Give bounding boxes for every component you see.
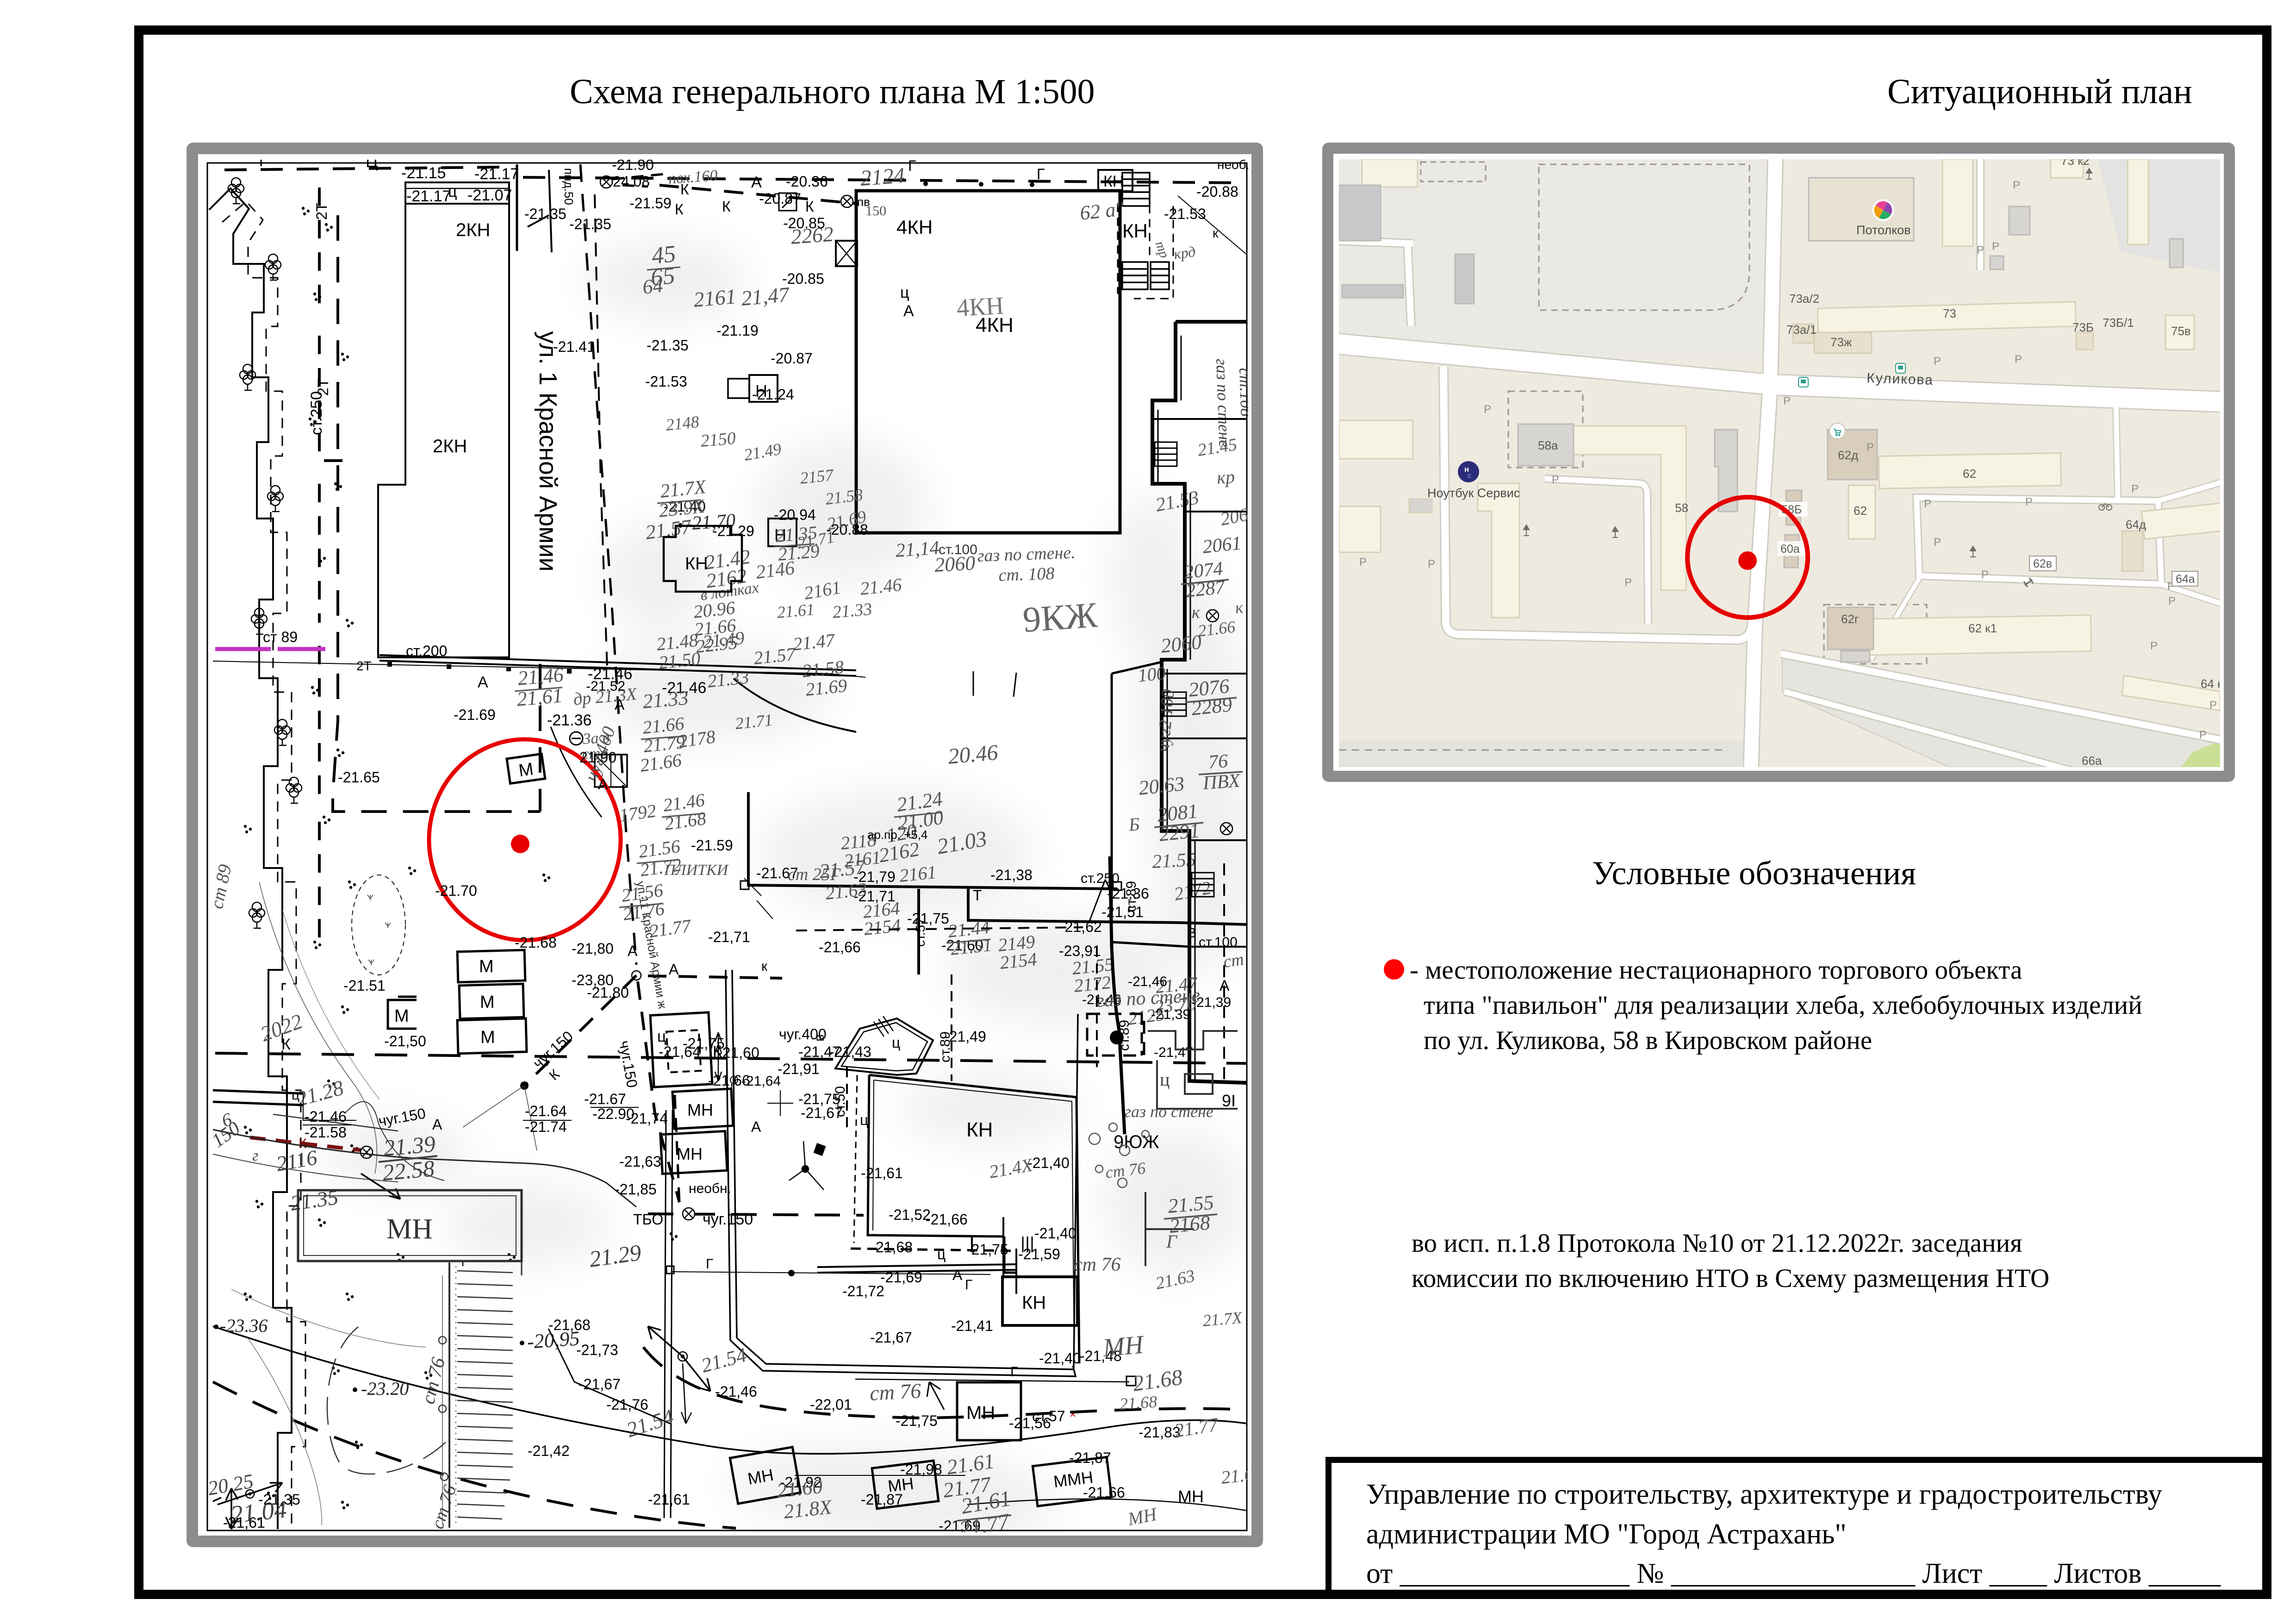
svg-text:2060: 2060 (1219, 502, 1248, 529)
svg-text:Р: Р (1924, 498, 1931, 510)
svg-text:МН: МН (1178, 1487, 1204, 1506)
svg-text:-20.94: -20.94 (774, 506, 816, 523)
svg-text:ц: ц (657, 1028, 666, 1045)
svg-text:21.49: 21.49 (742, 439, 783, 464)
svg-text:21.57: 21.57 (753, 643, 797, 668)
svg-text:-21.41: -21.41 (553, 338, 595, 355)
svg-text:Р: Р (1484, 403, 1491, 416)
svg-text:МН: МН (386, 1213, 433, 1245)
svg-text:в: в (812, 1034, 827, 1042)
svg-text:МН: МН (1101, 1330, 1146, 1362)
svg-text:9КЖ: 9КЖ (1021, 594, 1099, 640)
svg-text:×: × (1070, 1408, 1076, 1421)
svg-text:-21,69: -21,69 (880, 1269, 922, 1286)
svg-text:ст 76: ст 76 (1074, 1254, 1120, 1275)
svg-text:9ЮЖ: 9ЮЖ (1114, 1132, 1159, 1152)
svg-text:ст.200: ст.200 (406, 643, 447, 659)
svg-text:М: М (479, 957, 494, 976)
svg-text:58а: 58а (1538, 438, 1558, 452)
svg-text:М: М (480, 1028, 495, 1047)
svg-text:62 к1: 62 к1 (1968, 621, 1997, 635)
svg-text:-21.53: -21.53 (645, 373, 687, 390)
svg-text:20 25: 20 25 (206, 1469, 255, 1499)
svg-text:-21,75: -21,75 (896, 1412, 938, 1429)
svg-text:4КН: 4КН (896, 216, 933, 238)
svg-text:2161: 2161 (803, 577, 843, 604)
svg-text:ст.50: ст.50 (833, 1086, 848, 1117)
svg-text:ст.100: ст.100 (1199, 935, 1238, 950)
svg-text:А: А (751, 174, 762, 191)
svg-text:21.61: 21.61 (1220, 1463, 1248, 1488)
svg-text:Р: Р (2199, 729, 2207, 741)
svg-text:М: М (394, 1006, 409, 1026)
svg-text:21.61: 21.61 (776, 600, 815, 622)
svg-text:Р: Р (1977, 244, 1984, 256)
svg-text:21.71: 21.71 (734, 711, 774, 733)
svg-text:4КН: 4КН (976, 314, 1014, 337)
svg-text:А: А (628, 943, 638, 959)
svg-text:-23.20: -23.20 (361, 1378, 409, 1399)
svg-text:62: 62 (1963, 467, 1976, 481)
svg-text:Р: Р (1428, 558, 1435, 570)
svg-text:чуг.150: чуг.150 (703, 1211, 753, 1228)
svg-text:Р: Р (2025, 496, 2033, 508)
svg-text:чуг.150: чуг.150 (530, 1028, 576, 1072)
svg-text:Р: Р (1992, 240, 1999, 253)
svg-text:ц: ц (1160, 1069, 1170, 1090)
svg-text:Г: Г (1010, 1364, 1018, 1380)
svg-text:К: К (675, 201, 684, 218)
svg-text:А: А (903, 302, 914, 320)
svg-text:А: А (751, 1118, 761, 1135)
svg-text:73ж: 73ж (1830, 335, 1852, 349)
svg-text:-20.87: -20.87 (759, 190, 801, 207)
svg-text:-23.36: -23.36 (220, 1315, 268, 1336)
svg-text:73Б/1: 73Б/1 (2103, 316, 2134, 330)
svg-text:9І: 9І (1222, 1091, 1236, 1110)
svg-text:Ц: Ц (366, 160, 378, 171)
svg-text:А: А (478, 674, 488, 691)
svg-text:Р: Р (1981, 568, 1989, 581)
svg-text:2060: 2060 (1160, 631, 1203, 657)
svg-text:Р: Р (1867, 441, 1874, 454)
svg-text:-21,80: -21,80 (572, 940, 614, 957)
svg-text:2150: 2150 (700, 429, 736, 451)
svg-text:2289: 2289 (1190, 693, 1233, 720)
svg-text:20.63: 20.63 (1138, 772, 1186, 800)
svg-text:2161: 2161 (898, 862, 937, 886)
svg-text:-21.65: -21.65 (338, 769, 380, 786)
svg-text:ст 76: ст 76 (427, 1482, 460, 1531)
svg-text:ст.89: ст.89 (1124, 881, 1139, 912)
svg-text:-21,61: -21,61 (223, 1514, 265, 1531)
svg-text:21,47: 21,47 (740, 282, 791, 310)
svg-text:КН: КН (1103, 173, 1124, 190)
svg-text:20.46: 20.46 (947, 740, 999, 769)
svg-text:-21,75: -21,75 (966, 1241, 1008, 1258)
svg-text:КН: КН (1022, 1293, 1046, 1313)
svg-text:ст. 108: ст. 108 (998, 564, 1055, 585)
svg-text:газ по стене: газ по стене (1213, 358, 1234, 448)
svg-text:ПЛИТКИ: ПЛИТКИ (664, 862, 729, 879)
svg-text:64д: 64д (2126, 518, 2146, 531)
svg-text:Р: Р (1934, 355, 1941, 368)
svg-text:ст 89: ст 89 (206, 862, 236, 911)
svg-text:-21,40: -21,40 (1027, 1155, 1070, 1171)
svg-text:к: к (1213, 226, 1219, 240)
svg-text:2Т: 2Т (313, 203, 330, 220)
svg-text:чуг.150: чуг.150 (616, 1039, 641, 1089)
svg-text:-20.85: -20.85 (782, 270, 824, 287)
svg-text:-21,72: -21,72 (842, 1283, 884, 1299)
svg-text:-21.19: -21.19 (716, 322, 759, 339)
svg-text:-21.69: -21.69 (454, 706, 496, 723)
svg-text:К: К (547, 1067, 563, 1084)
svg-text:газ по стене: газ по стене (1125, 1102, 1213, 1121)
svg-text:62в: 62в (2033, 557, 2052, 570)
svg-text:21.33: 21.33 (832, 600, 873, 622)
svg-text:73: 73 (1943, 306, 1956, 320)
svg-text:В: В (1187, 925, 1196, 941)
svg-text:-21,38: -21,38 (990, 867, 1033, 883)
svg-text:-21.59: -21.59 (691, 837, 733, 854)
svg-text:21.77: 21.77 (1173, 1414, 1220, 1442)
svg-text:21.46: 21.46 (859, 574, 902, 599)
svg-text:Р: Р (1552, 474, 1559, 486)
svg-text:1792: 1792 (618, 800, 657, 826)
svg-text:21.45: 21.45 (1196, 435, 1238, 460)
svg-text:2061: 2061 (1201, 532, 1242, 558)
svg-text:-21,43: -21,43 (829, 1043, 871, 1060)
svg-text:Р: Р (2015, 353, 2022, 366)
svg-text:к: к (1234, 598, 1244, 617)
svg-text:ст.108: ст.108 (1236, 368, 1248, 417)
svg-text:А: А (669, 961, 679, 978)
svg-text:ст.250: ст.250 (308, 391, 325, 435)
svg-text:необн.: необн. (689, 1181, 731, 1196)
svg-text:ц: ц (892, 1034, 900, 1051)
svg-text:-21,66: -21,66 (926, 1211, 968, 1228)
svg-text:А: А (615, 696, 625, 713)
svg-text:73Б: 73Б (2072, 320, 2094, 334)
svg-text:-21,73: -21,73 (576, 1342, 618, 1358)
svg-text:-21,66: -21,66 (819, 939, 861, 956)
svg-text:-21.58: -21.58 (305, 1124, 347, 1141)
svg-text:А: А (598, 776, 608, 793)
svg-text:-21.36: -21.36 (547, 712, 591, 729)
svg-text:ц: ц (860, 1112, 868, 1128)
svg-text:2161: 2161 (843, 847, 882, 871)
svg-text:-21,42: -21,42 (528, 1443, 570, 1459)
svg-text:-21,74: -21,74 (626, 1110, 668, 1127)
svg-text:г: г (252, 1147, 258, 1164)
svg-text:150: 150 (865, 203, 886, 219)
svg-text:21.7Х: 21.7Х (1202, 1308, 1244, 1330)
svg-text:21.50: 21.50 (658, 648, 701, 673)
svg-text:МН: МН (966, 1403, 995, 1423)
svg-text:21.69: 21.69 (804, 675, 848, 700)
svg-text:62 а": 62 а" (1079, 197, 1126, 225)
svg-text:-21.74: -21.74 (525, 1118, 567, 1135)
svg-text:2157: 2157 (799, 465, 835, 487)
svg-text:ар.пр. +5,4: ар.пр. +5,4 (867, 828, 927, 842)
svg-text:Г: Г (1037, 166, 1045, 182)
svg-text:МН: МН (677, 1144, 703, 1163)
svg-text:-21,41: -21,41 (951, 1318, 993, 1334)
svg-text:21.54: 21.54 (699, 1343, 749, 1377)
svg-text:МН: МН (687, 1100, 713, 1119)
svg-text:ст.250: ст.250 (1081, 871, 1120, 886)
svg-text:Б: Б (1127, 813, 1140, 835)
svg-text:-21.51: -21.51 (343, 977, 386, 994)
svg-text:КН: КН (1122, 220, 1148, 242)
svg-text:-21.35: -21.35 (647, 337, 689, 354)
svg-text:21,68: 21,68 (876, 1239, 913, 1255)
svg-text:Г: Г (908, 160, 916, 174)
svg-text:крд: крд (1173, 243, 1196, 262)
svg-text:-21.67: -21.67 (584, 1091, 626, 1107)
svg-text:62д: 62д (1838, 448, 1858, 462)
svg-text:2146: 2146 (755, 557, 796, 583)
svg-text:Р: Р (2150, 640, 2158, 652)
svg-text:2124: 2124 (859, 163, 905, 191)
svg-text:Г: Г (965, 1277, 972, 1293)
svg-text:-21.64: -21.64 (525, 1103, 567, 1119)
svg-text:Г: Г (259, 160, 267, 169)
svg-text:73 к2: 73 к2 (2061, 159, 2090, 168)
svg-text:ул. 1 Красной Армии: ул. 1 Красной Армии (534, 331, 562, 571)
svg-text:2161: 2161 (692, 284, 737, 312)
svg-text:-21,40: -21,40 (1034, 1225, 1076, 1242)
svg-text:-21,61: -21,61 (648, 1491, 690, 1508)
svg-text:22.95: 22.95 (695, 632, 738, 657)
svg-text:64 к: 64 к (2201, 677, 2220, 691)
svg-text:с: с (1468, 472, 1471, 480)
svg-text:-21,39: -21,39 (1151, 1007, 1190, 1022)
svg-text:-21,91: -21,91 (778, 1061, 820, 1077)
svg-text:-21,67: -21,67 (870, 1329, 912, 1346)
svg-text:Т: Т (973, 887, 982, 904)
svg-text:-21.68: -21.68 (515, 934, 557, 951)
svg-text:-21,50: -21,50 (384, 1033, 426, 1049)
svg-text:-21,56: -21,56 (1009, 1415, 1051, 1431)
svg-text:21.68: 21.68 (1119, 1392, 1158, 1413)
svg-text:-21.90: -21.90 (612, 160, 654, 173)
svg-text:пвх.160: пвх.160 (668, 167, 718, 187)
svg-text:-21,98: -21,98 (900, 1461, 942, 1478)
svg-text:-21,47: -21,47 (1154, 1045, 1193, 1060)
svg-text:-21.07: -21.07 (467, 187, 512, 204)
svg-text:ст.57: ст.57 (913, 918, 927, 947)
svg-text:Р: Р (1783, 395, 1791, 407)
svg-text:к: к (1192, 603, 1201, 622)
svg-text:66а: 66а (2082, 754, 2102, 767)
svg-text:М: М (480, 993, 495, 1012)
svg-text:21.4Х: 21.4Х (988, 1154, 1035, 1182)
svg-text:62: 62 (1854, 504, 1867, 518)
svg-text:ц: ц (937, 1246, 946, 1262)
svg-text:ст.100: ст.100 (898, 160, 934, 162)
svg-text:Р: Р (1359, 556, 1367, 568)
svg-text:64а: 64а (2176, 573, 2195, 586)
svg-text:-21.52: -21.52 (586, 679, 625, 694)
svg-text:-21.70: -21.70 (435, 882, 477, 899)
svg-text:21.33: 21.33 (706, 667, 750, 692)
svg-text:2154: 2154 (999, 949, 1038, 973)
svg-text:Потолков: Потолков (1856, 223, 1911, 237)
svg-text:21.47: 21.47 (792, 630, 836, 655)
svg-text:-20.36: -20.36 (786, 173, 828, 190)
svg-text:кр: кр (1216, 466, 1235, 488)
svg-text:МН: МН (1126, 1503, 1159, 1530)
svg-text:76: 76 (1207, 750, 1228, 773)
svg-text:-21.59: -21.59 (629, 195, 672, 212)
svg-text:21,14: 21,14 (895, 537, 940, 561)
svg-text:62г: 62г (1841, 612, 1859, 626)
svg-text:-21,61: -21,61 (861, 1165, 903, 1181)
svg-text:КН: КН (966, 1118, 993, 1141)
svg-text:-21,66: -21,66 (708, 1072, 750, 1089)
svg-text:75в: 75в (2171, 324, 2191, 338)
svg-text:-20.88: -20.88 (1196, 183, 1238, 200)
svg-text:Р: Р (1624, 576, 1632, 589)
svg-text:21.68: 21.68 (1131, 1365, 1184, 1396)
svg-text:-21,40: -21,40 (1039, 1350, 1081, 1367)
svg-text:-21.80: -21.80 (587, 984, 629, 1001)
svg-text:24.08: 24.08 (613, 173, 650, 190)
svg-text:2148: 2148 (665, 412, 700, 434)
svg-text:ст 89: ст 89 (263, 629, 298, 645)
svg-text:-21.24: -21.24 (752, 386, 794, 403)
svg-text:-21,35: -21,35 (258, 1491, 300, 1508)
svg-text:необ.: необ. (1217, 160, 1248, 172)
svg-text:КН: КН (685, 554, 708, 574)
svg-text:Р: Р (2131, 483, 2139, 495)
svg-text:73а/1: 73а/1 (1786, 323, 1817, 337)
svg-text:Р: Р (2168, 595, 2176, 607)
svg-text:К: К (805, 198, 814, 215)
svg-text:-21,52: -21,52 (889, 1206, 931, 1223)
svg-text:газ по стене.: газ по стене. (977, 543, 1076, 566)
svg-text:-21,75: -21,75 (683, 1035, 725, 1052)
svg-text:пнд.50: пнд.50 (562, 168, 576, 205)
svg-text:ц: ц (900, 284, 909, 301)
svg-text:73а/2: 73а/2 (1789, 292, 1819, 306)
svg-text:Ноутбук Сервис: Ноутбук Сервис (1427, 486, 1520, 500)
svg-text:2262: 2262 (790, 222, 834, 249)
svg-text:-21,59: -21,59 (1018, 1246, 1060, 1262)
svg-text:Р: Р (2013, 179, 2020, 192)
svg-text:2КН: 2КН (433, 436, 467, 456)
svg-text:ТБО: ТБО (633, 1211, 663, 1228)
svg-text:А: А (952, 1267, 963, 1283)
svg-text:2КН: 2КН (456, 220, 490, 240)
svg-text:2178: 2178 (677, 726, 716, 752)
svg-text:-20,95: -20,95 (526, 1327, 580, 1353)
svg-text:21.51: 21.51 (949, 934, 993, 959)
svg-text:ст.100: ст.100 (939, 542, 977, 557)
svg-text:21.33: 21.33 (642, 687, 690, 713)
svg-text:-22,01: -22,01 (810, 1396, 852, 1413)
svg-text:к: к (761, 959, 768, 974)
svg-text:60а: 60а (1780, 543, 1800, 556)
svg-text:-21.35: -21.35 (524, 206, 566, 222)
svg-text:2116: 2116 (274, 1145, 319, 1176)
svg-text:ст 76: ст 76 (869, 1379, 922, 1405)
svg-text:-21,66: -21,66 (1083, 1484, 1125, 1501)
svg-text:М: М (517, 759, 535, 781)
svg-text:Г: Г (706, 1256, 713, 1272)
svg-text:ц: ц (292, 1087, 299, 1103)
svg-text:2Т: 2Т (356, 659, 372, 673)
svg-text:ст 76: ст 76 (417, 1355, 449, 1406)
svg-text:К: К (722, 198, 731, 215)
svg-text:-21.35: -21.35 (569, 216, 611, 232)
svg-text:64: 64 (641, 274, 664, 299)
svg-text:ц: ц (448, 183, 457, 200)
svg-text:21.63: 21.63 (824, 879, 868, 904)
svg-text:-21,63: -21,63 (619, 1153, 661, 1170)
svg-text:-21,67: -21,67 (579, 1376, 621, 1393)
svg-text:100: 100 (1137, 662, 1166, 686)
svg-text:-21.17: -21.17 (406, 187, 451, 205)
svg-text:-21,87: -21,87 (861, 1491, 903, 1508)
svg-text:-21.46: -21.46 (305, 1108, 347, 1125)
svg-text:-20.87: -20.87 (771, 350, 813, 367)
svg-text:К: К (281, 1036, 291, 1053)
svg-text:2154: 2154 (863, 915, 902, 939)
svg-text:Р: Р (1934, 536, 1941, 549)
svg-text:тр: тр (1152, 239, 1172, 260)
svg-text:58: 58 (1675, 501, 1688, 515)
svg-text:-21,71: -21,71 (708, 929, 750, 945)
svg-text:Р: Р (2209, 699, 2217, 712)
